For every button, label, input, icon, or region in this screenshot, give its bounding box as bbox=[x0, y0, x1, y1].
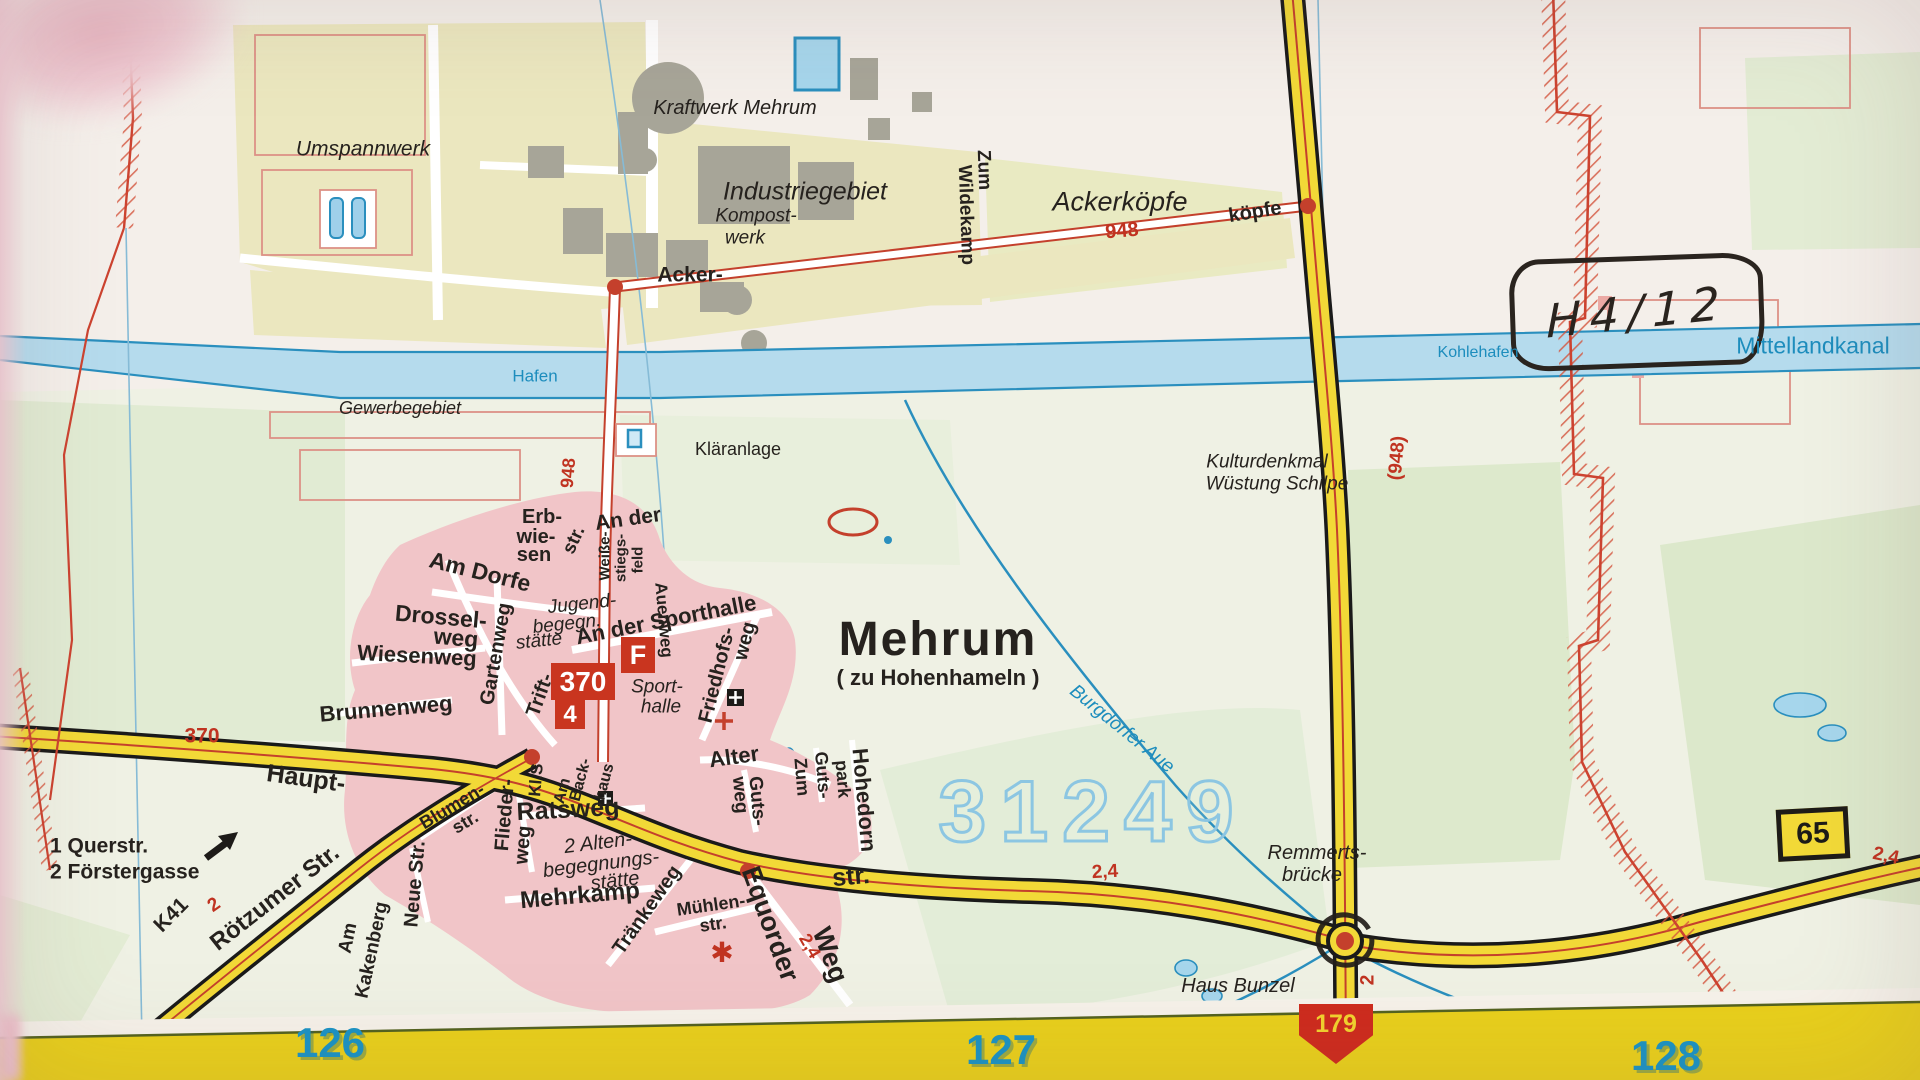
handwritten-annotation-text: H4/12 bbox=[1546, 275, 1728, 348]
route-badge-4: 4 bbox=[555, 700, 585, 729]
cooling-basin bbox=[795, 38, 839, 90]
route-badge-370: 370 bbox=[551, 663, 615, 700]
klaeranlage-symbol bbox=[616, 424, 656, 456]
substation-pad bbox=[320, 190, 376, 248]
handwritten-annotation-box: H4/12 bbox=[1508, 252, 1766, 373]
photo-paper-edge-bottom-left bbox=[0, 1015, 20, 1080]
bundesstrasse-65-badge: 65 bbox=[1776, 806, 1851, 862]
photo-paper-edge-left bbox=[0, 0, 26, 1080]
small-pond-dot bbox=[884, 536, 892, 544]
substation-basin-2 bbox=[352, 198, 365, 238]
map-graphics bbox=[0, 0, 1920, 1080]
parking-badge-f: F bbox=[621, 637, 655, 673]
paper-road-map-photo: 370 4 F 65 179 H4/12 UmspannwerkKraftwer… bbox=[0, 0, 1920, 1080]
substation-basin-1 bbox=[330, 198, 343, 238]
